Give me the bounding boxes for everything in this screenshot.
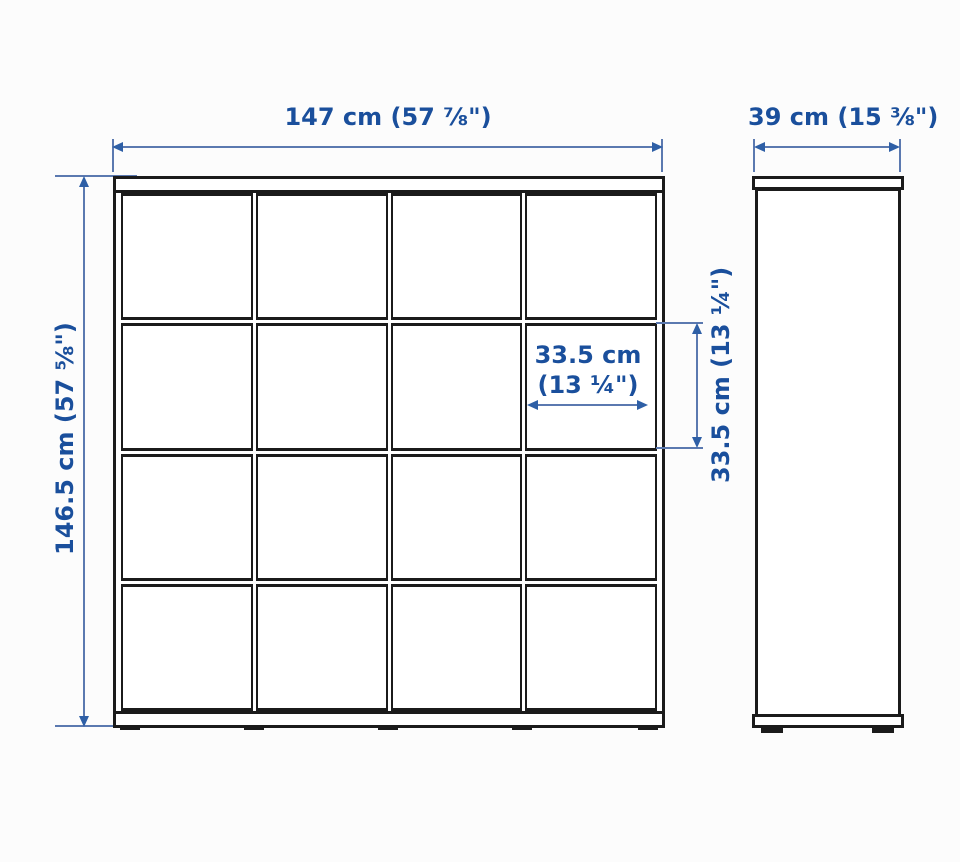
arrow-right-icon bbox=[652, 142, 663, 152]
arrow-down-icon bbox=[692, 437, 702, 448]
arrow-right-icon bbox=[889, 142, 900, 152]
shelf-cell bbox=[391, 193, 523, 320]
side-depth-label: 39 cm (15 ⅜") bbox=[748, 102, 908, 132]
product-dimension-diagram: 147 cm (57 ⅞") 146.5 cm (57 ⅝") 33.5 cm … bbox=[0, 0, 960, 862]
cell-width-label-line1: 33.5 cm bbox=[526, 340, 650, 370]
front-foot bbox=[638, 725, 658, 730]
dim-line bbox=[83, 186, 85, 717]
front-foot bbox=[120, 725, 140, 730]
arrow-right-icon bbox=[637, 400, 648, 410]
arrow-up-icon bbox=[79, 176, 89, 187]
shelf-cell bbox=[121, 584, 253, 711]
shelf-cell bbox=[256, 193, 388, 320]
shelf-cell bbox=[525, 454, 657, 581]
front-height-label: 146.5 cm (57 ⅝") bbox=[50, 355, 80, 555]
front-grid bbox=[121, 193, 657, 711]
shelf-cell bbox=[256, 454, 388, 581]
side-foot bbox=[872, 728, 894, 733]
dim-line bbox=[536, 404, 639, 406]
side-body bbox=[755, 188, 901, 717]
shelf-cell bbox=[391, 584, 523, 711]
side-plinth bbox=[752, 714, 904, 728]
shelf-cell bbox=[121, 454, 253, 581]
shelf-cell bbox=[525, 193, 657, 320]
shelf-cell bbox=[256, 584, 388, 711]
arrow-left-icon bbox=[527, 400, 538, 410]
front-view-drawing bbox=[113, 176, 665, 728]
dim-line bbox=[764, 146, 890, 148]
cell-height-label: 33.5 cm (13 ¼") bbox=[706, 293, 736, 483]
front-foot bbox=[244, 725, 264, 730]
arrow-left-icon bbox=[754, 142, 765, 152]
front-foot bbox=[512, 725, 532, 730]
shelf-cell bbox=[121, 323, 253, 450]
shelf-cell bbox=[391, 454, 523, 581]
cell-width-label-line2: (13 ¼") bbox=[526, 370, 650, 400]
front-width-label: 147 cm (57 ⅞") bbox=[113, 102, 663, 132]
shelf-cell bbox=[525, 584, 657, 711]
front-plinth bbox=[116, 711, 662, 725]
dim-line bbox=[122, 146, 653, 148]
shelf-cell bbox=[121, 193, 253, 320]
dim-line bbox=[696, 332, 698, 439]
arrow-down-icon bbox=[79, 716, 89, 727]
arrow-left-icon bbox=[112, 142, 123, 152]
arrow-up-icon bbox=[692, 323, 702, 334]
front-top-panel bbox=[116, 179, 662, 193]
shelf-cell bbox=[256, 323, 388, 450]
shelf-cell bbox=[391, 323, 523, 450]
side-foot bbox=[761, 728, 783, 733]
front-foot bbox=[378, 725, 398, 730]
